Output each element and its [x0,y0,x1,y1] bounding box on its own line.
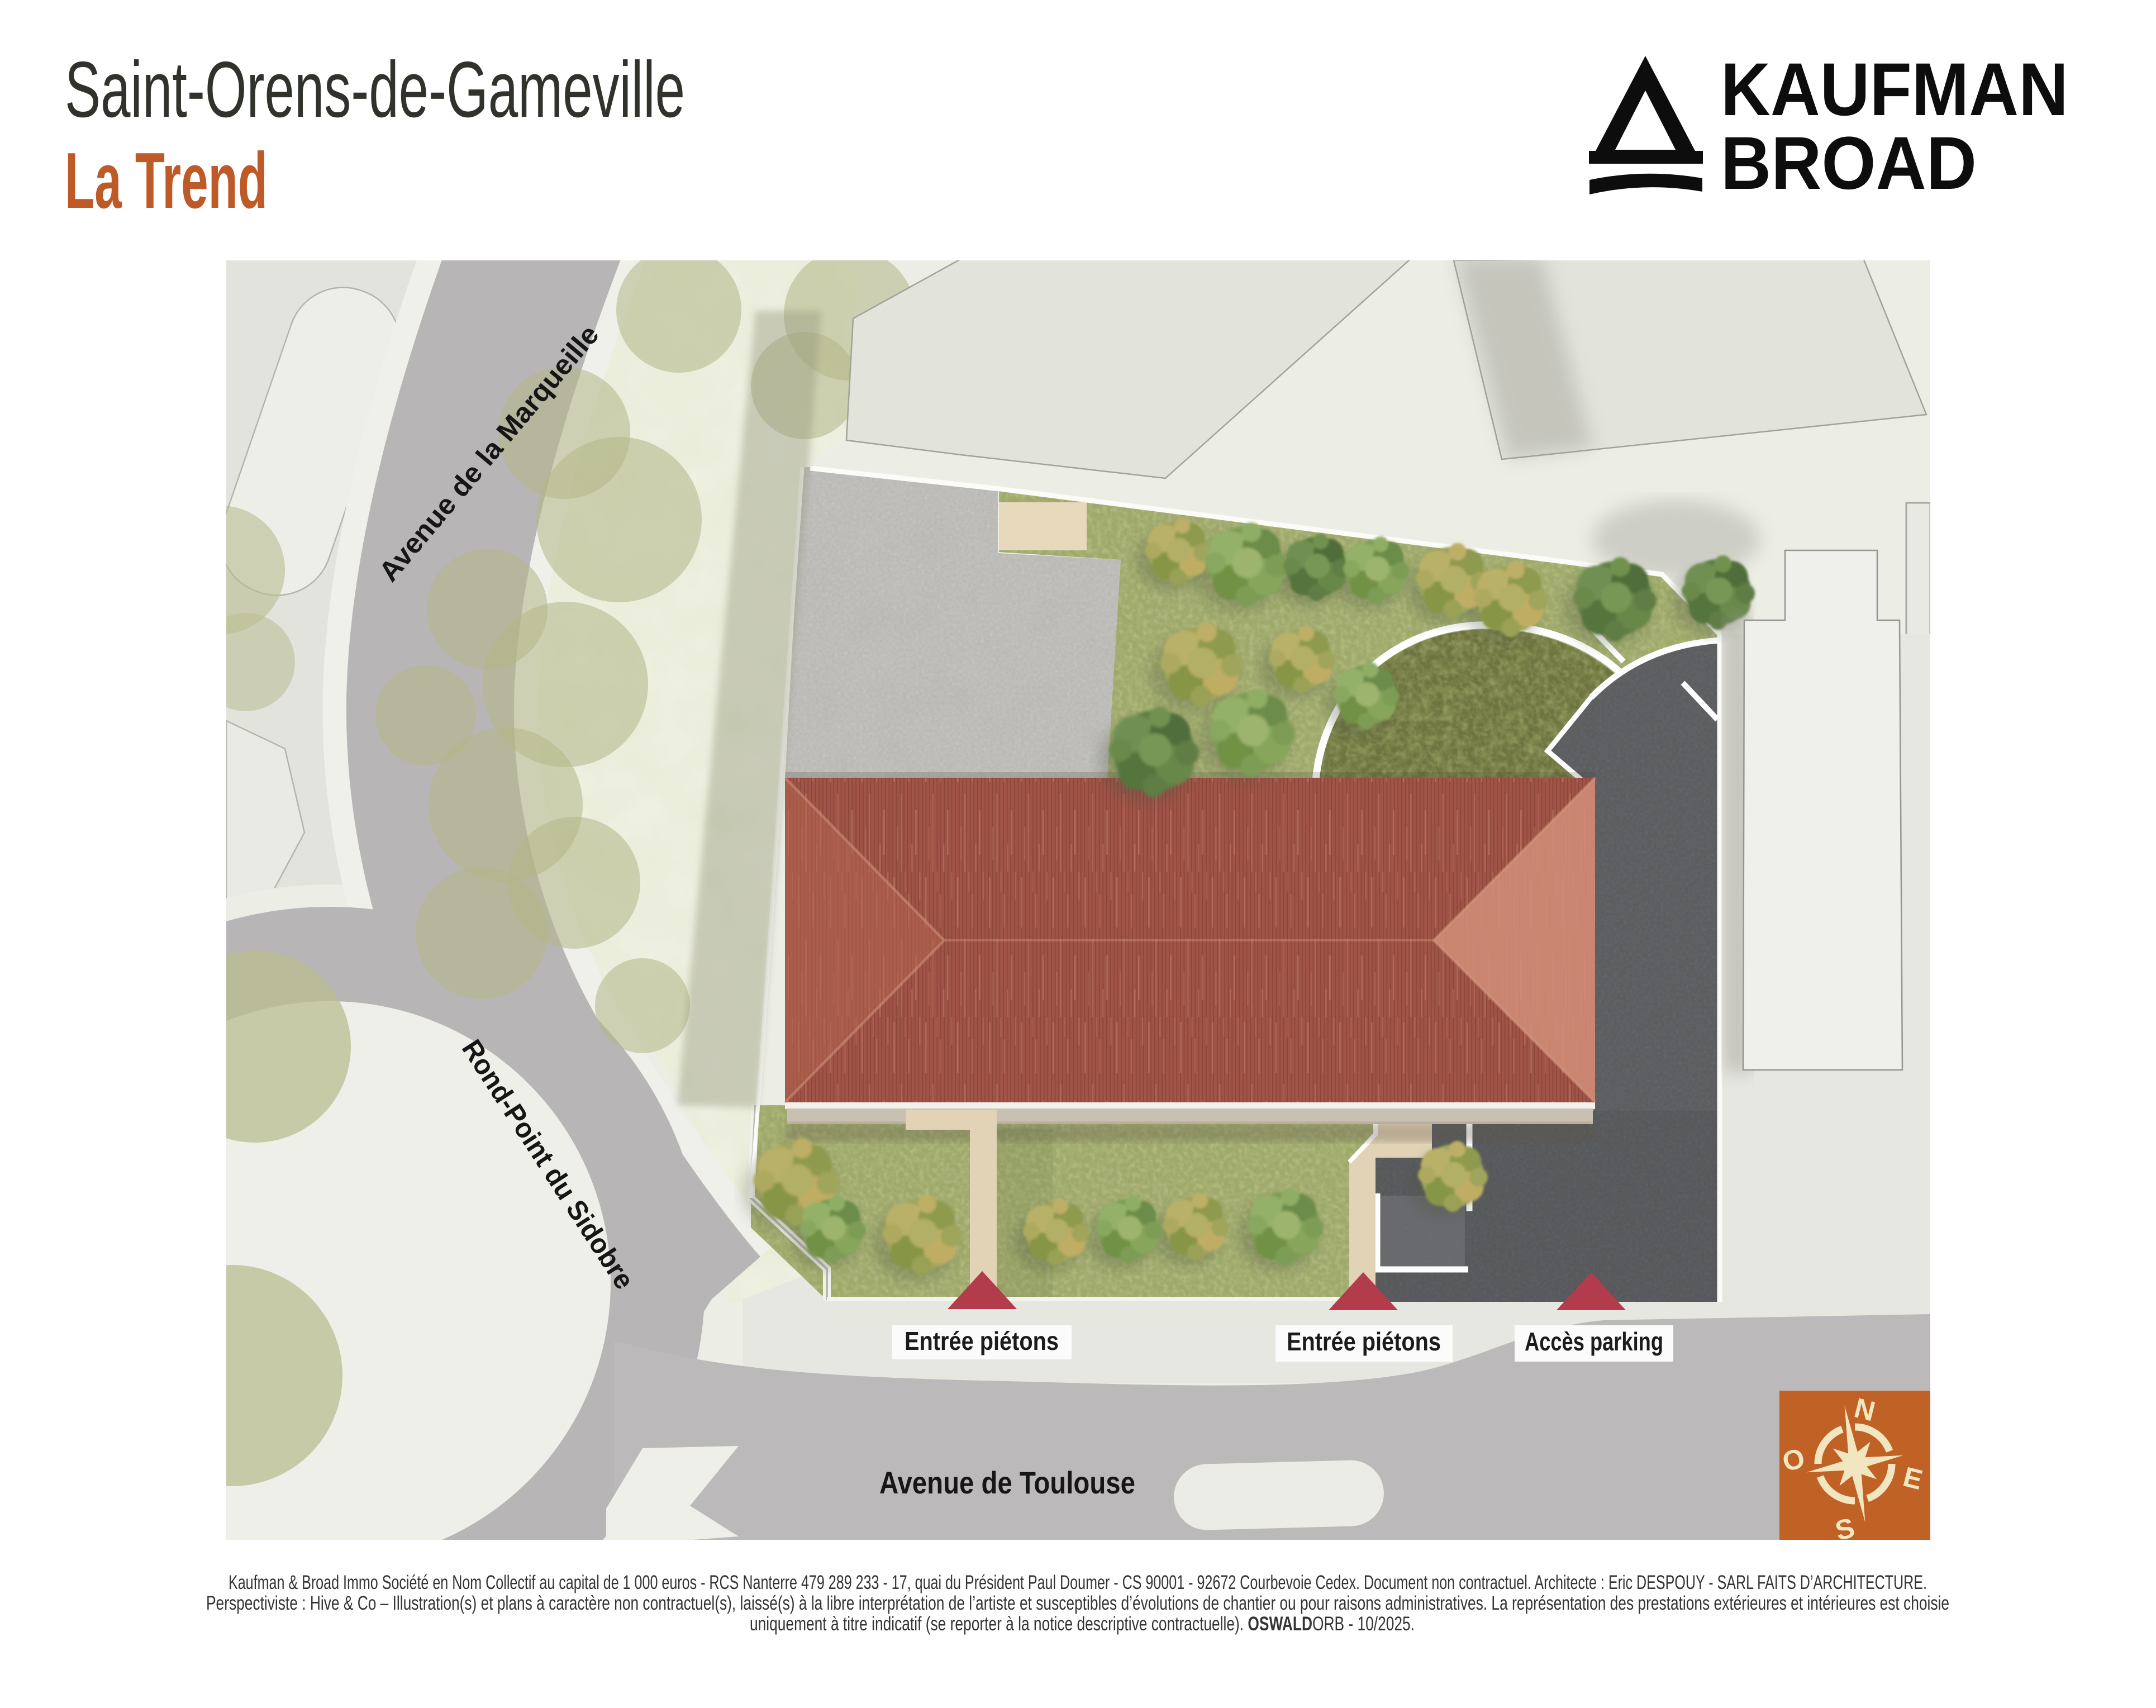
svg-text:KAUFMAN: KAUFMAN [1721,48,2068,131]
svg-text:Entrée piétons: Entrée piétons [1287,1327,1441,1356]
svg-text:La Trend: La Trend [65,136,268,225]
svg-text:Entrée piétons: Entrée piétons [905,1326,1059,1355]
svg-text:BROAD: BROAD [1721,122,1977,205]
svg-text:Accès parking: Accès parking [1525,1327,1663,1356]
svg-text:Avenue de Toulouse: Avenue de Toulouse [879,1465,1135,1500]
svg-text:Saint-Orens-de-Gameville: Saint-Orens-de-Gameville [65,45,685,134]
svg-text:Perspectiviste : Hive & Co – I: Perspectiviste : Hive & Co – Illustratio… [206,1592,1949,1614]
svg-text:Kaufman & Broad Immo Société e: Kaufman & Broad Immo Société en Nom Coll… [229,1572,1927,1593]
svg-text:uniquement à titre indicatif (: uniquement à titre indicatif (se reporte… [750,1613,1415,1635]
